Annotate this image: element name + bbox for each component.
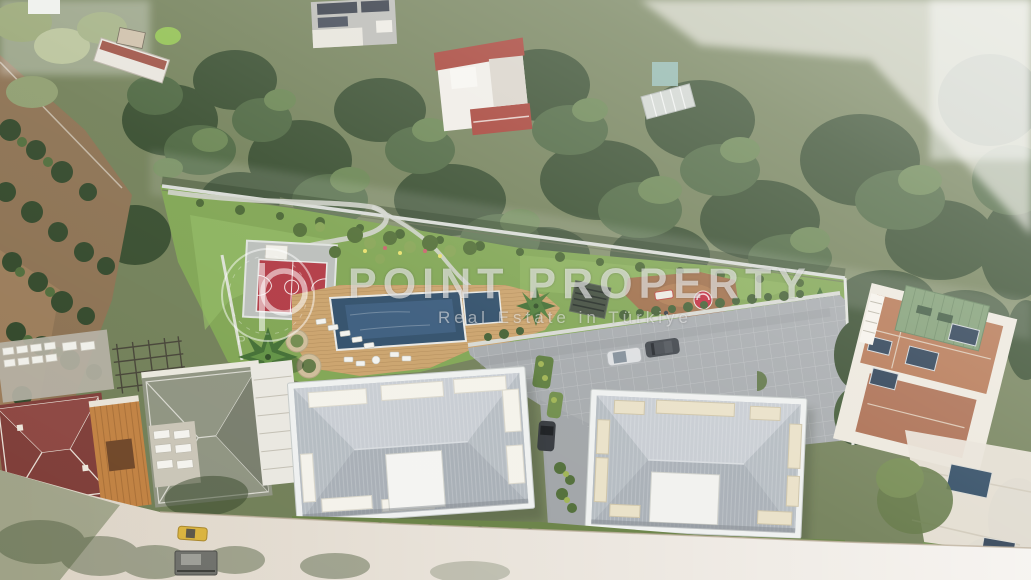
aerial-site-plan-photo: P POINT PROPERTY Real Estate in Türkiye <box>0 0 1031 580</box>
watermark-logo-letter: P <box>237 333 246 348</box>
light-veil <box>0 0 1031 580</box>
scene-canvas: P <box>0 0 1031 580</box>
